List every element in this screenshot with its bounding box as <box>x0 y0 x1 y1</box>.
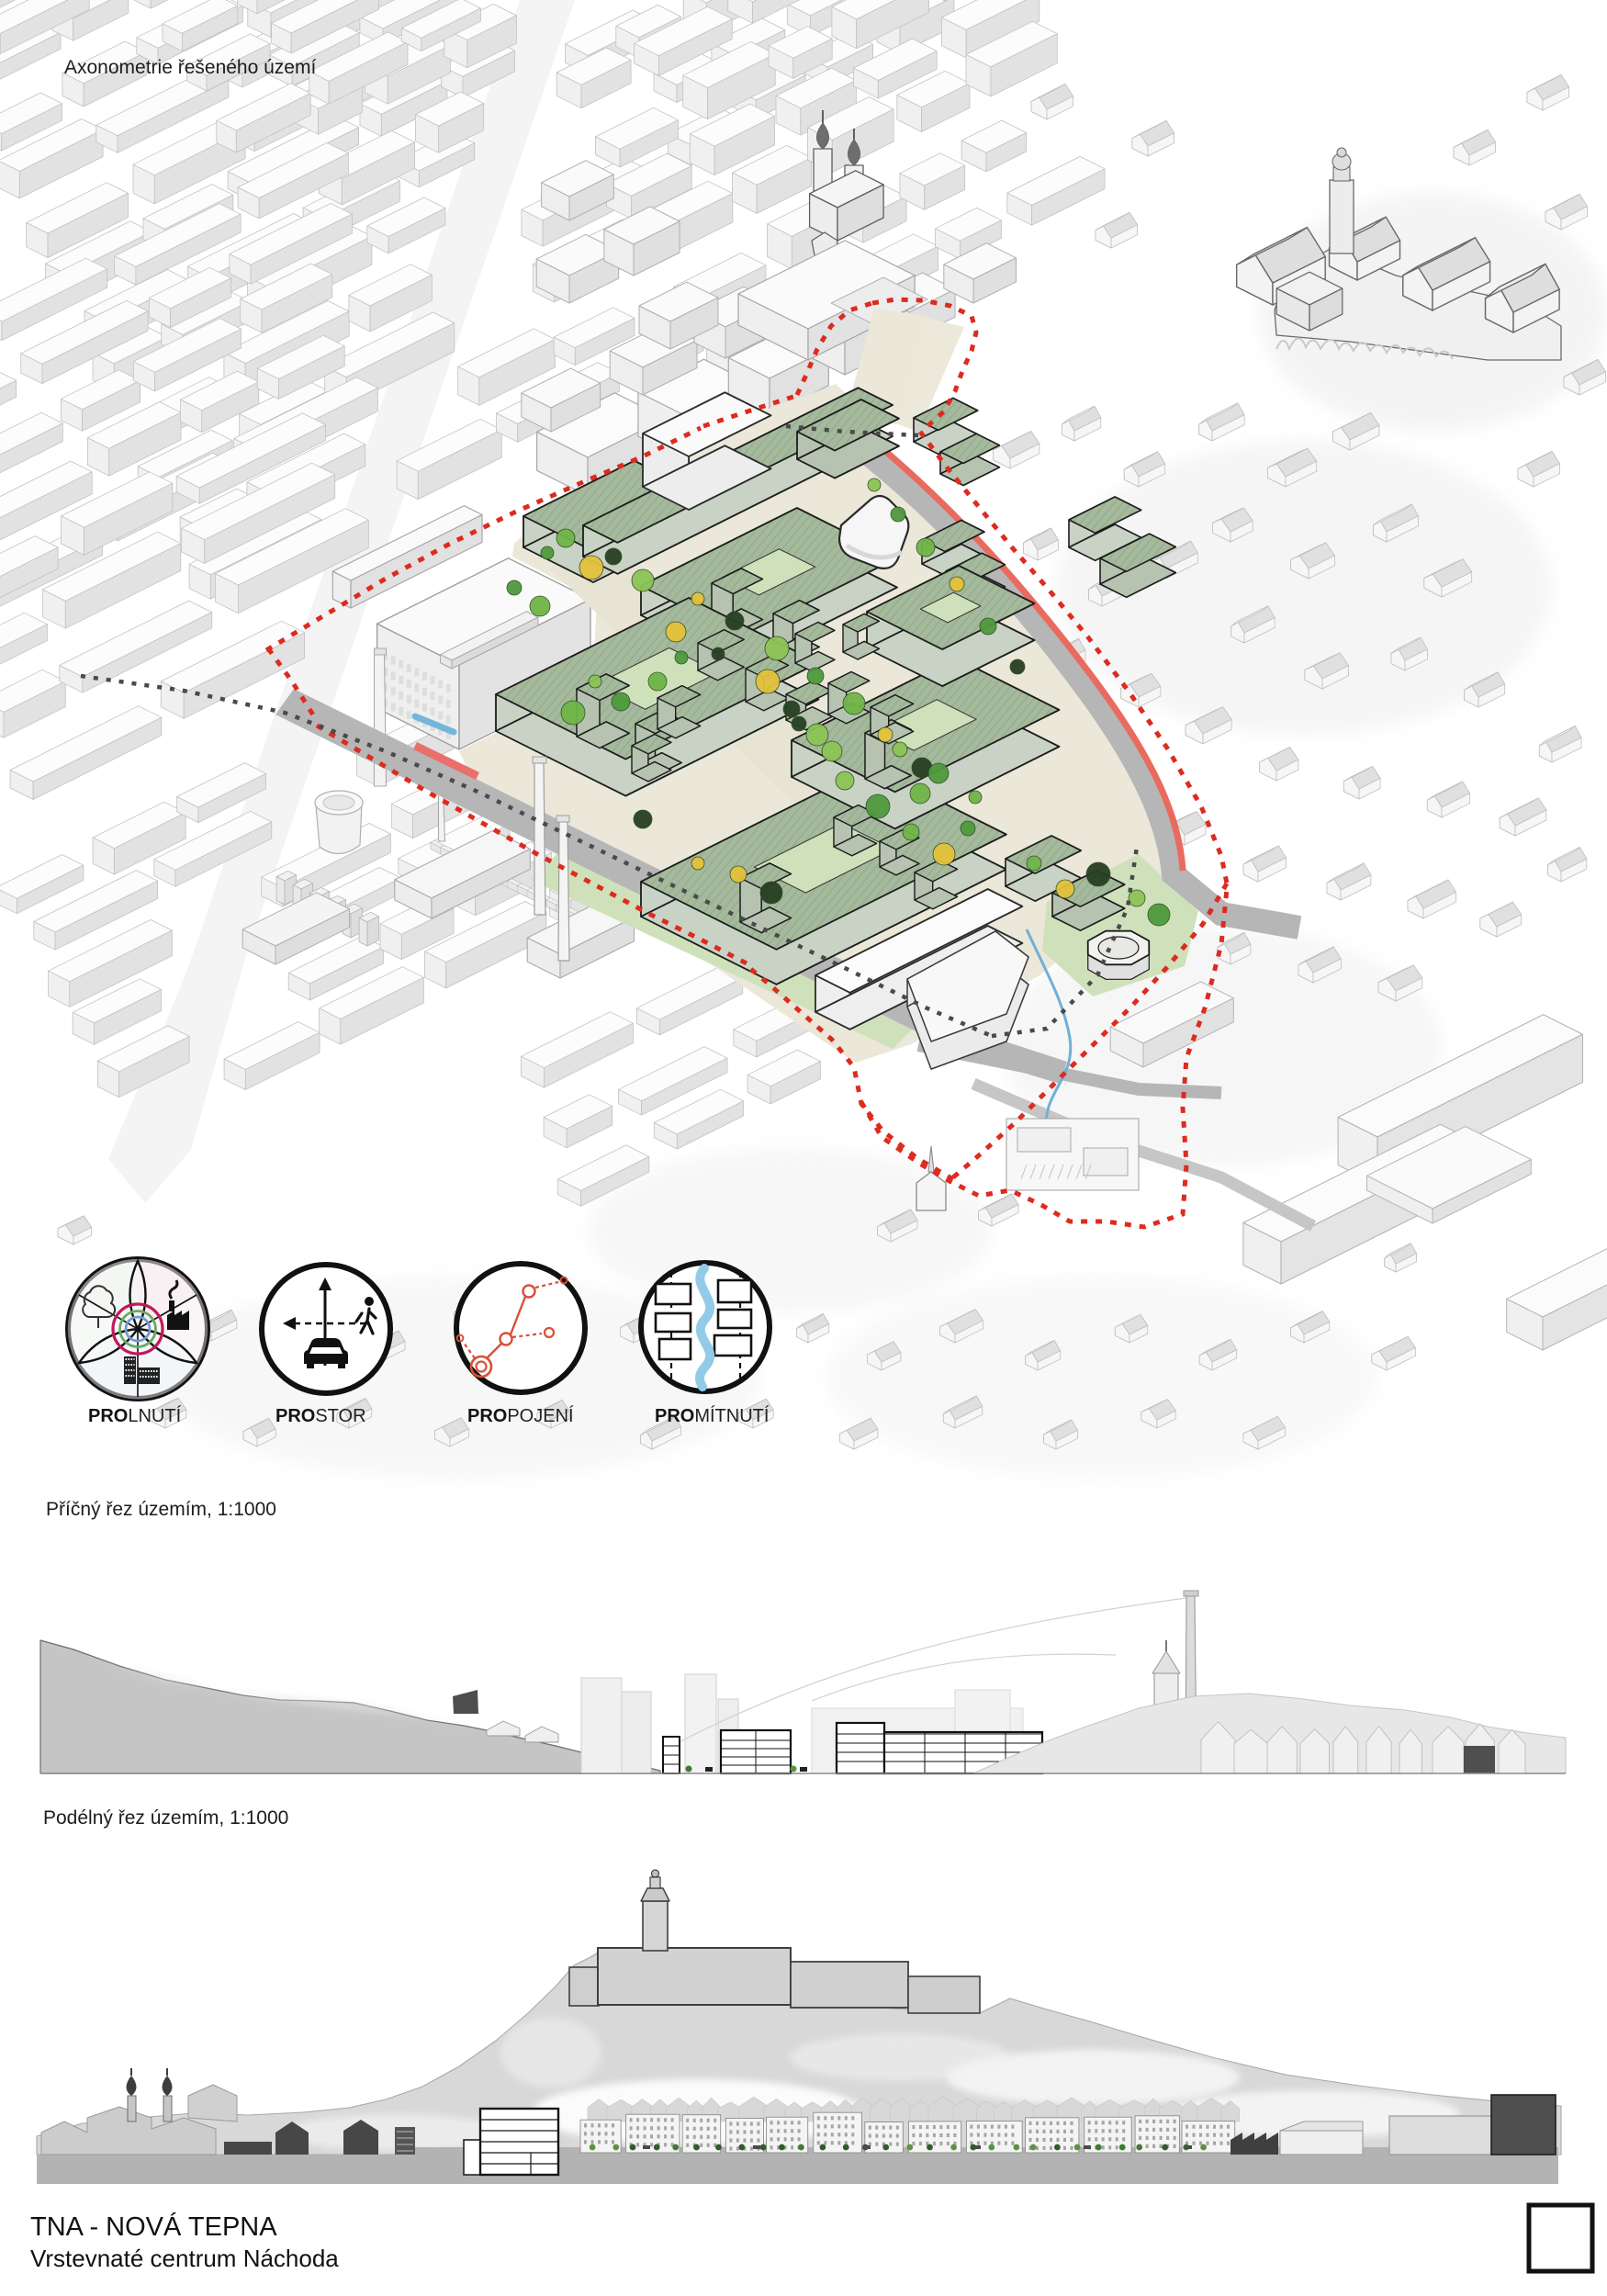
svg-text:TNA - NOVÁ TEPNA: TNA - NOVÁ TEPNA <box>30 2212 277 2242</box>
svg-text:Axonometrie řešeného území: Axonometrie řešeného území <box>64 57 316 78</box>
svg-text:PROPOJENÍ: PROPOJENÍ <box>467 1405 574 1426</box>
svg-text:PROSTOR: PROSTOR <box>275 1406 366 1426</box>
svg-text:PROMÍTNUTÍ: PROMÍTNUTÍ <box>655 1405 770 1426</box>
svg-text:PROLNUTÍ: PROLNUTÍ <box>88 1405 182 1426</box>
svg-text:Vrstevnaté centrum Náchoda: Vrstevnaté centrum Náchoda <box>30 2245 339 2272</box>
svg-text:Příčný řez územím, 1:1000: Příčný řez územím, 1:1000 <box>46 1499 276 1520</box>
svg-text:Podélný řez územím, 1:1000: Podélný řez územím, 1:1000 <box>43 1807 288 1829</box>
